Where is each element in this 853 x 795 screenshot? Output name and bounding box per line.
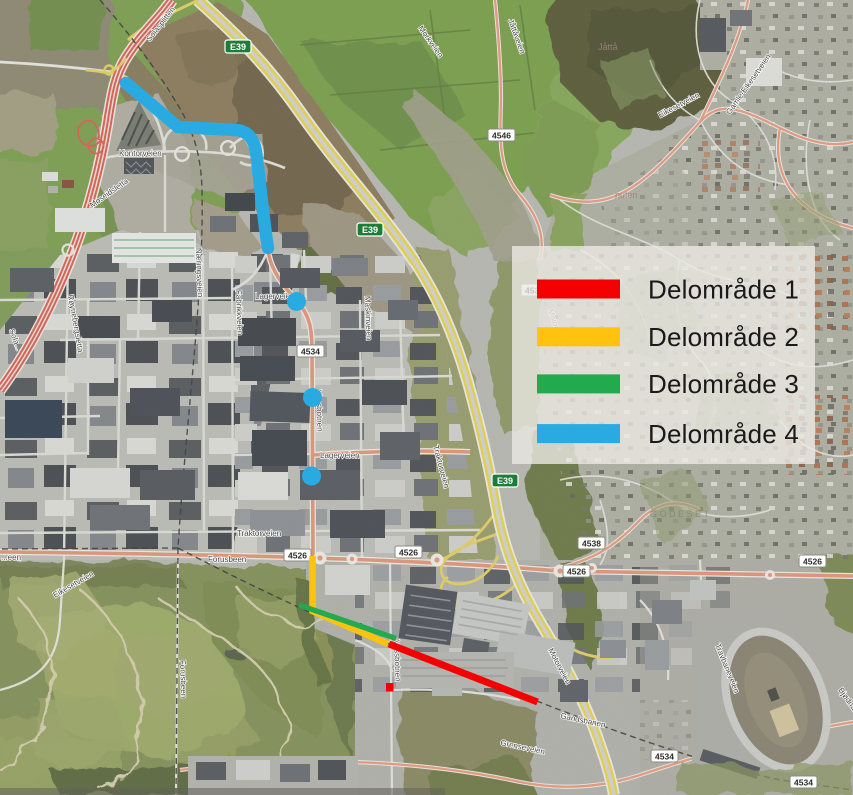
svg-text:Fabrikkveien: Fabrikkveien (234, 290, 245, 336)
svg-text:4534: 4534 (655, 752, 674, 762)
svg-text:Delområde 2: Delområde 2 (648, 322, 799, 352)
svg-text:Traktorveien: Traktorveien (237, 529, 281, 538)
svg-text:Forusbeen: Forusbeen (208, 555, 246, 564)
svg-text:E39: E39 (230, 42, 246, 52)
svg-text:Kontorveien: Kontorveien (119, 149, 162, 158)
svg-text:4526: 4526 (803, 557, 822, 567)
svg-text:nuten: nuten (615, 190, 638, 200)
svg-text:4526: 4526 (567, 567, 586, 577)
svg-text:GODESET: GODESET (650, 509, 712, 519)
svg-text:4538: 4538 (582, 539, 601, 549)
svg-text:Forusbeen: Forusbeen (178, 660, 188, 699)
svg-text:4526: 4526 (288, 551, 307, 561)
svg-text:Delområde 3: Delområde 3 (648, 369, 799, 399)
svg-text:4546: 4546 (492, 131, 511, 141)
svg-text:4534: 4534 (301, 347, 320, 357)
svg-text:Maskinveien: Maskinveien (363, 296, 374, 341)
svg-text:...een: ...een (1, 553, 21, 562)
svg-text:E39: E39 (362, 225, 378, 235)
svg-text:4526: 4526 (399, 548, 418, 558)
svg-text:Jåttå: Jåttå (598, 42, 618, 52)
svg-text:Næringsveien: Næringsveien (194, 248, 205, 298)
svg-text:4534: 4534 (794, 778, 813, 788)
svg-text:E39: E39 (497, 476, 513, 486)
svg-text:Lagerveien: Lagerveien (320, 451, 360, 460)
svg-text:Delområde 4: Delområde 4 (648, 419, 799, 449)
svg-text:Delområde 1: Delområde 1 (648, 275, 799, 305)
